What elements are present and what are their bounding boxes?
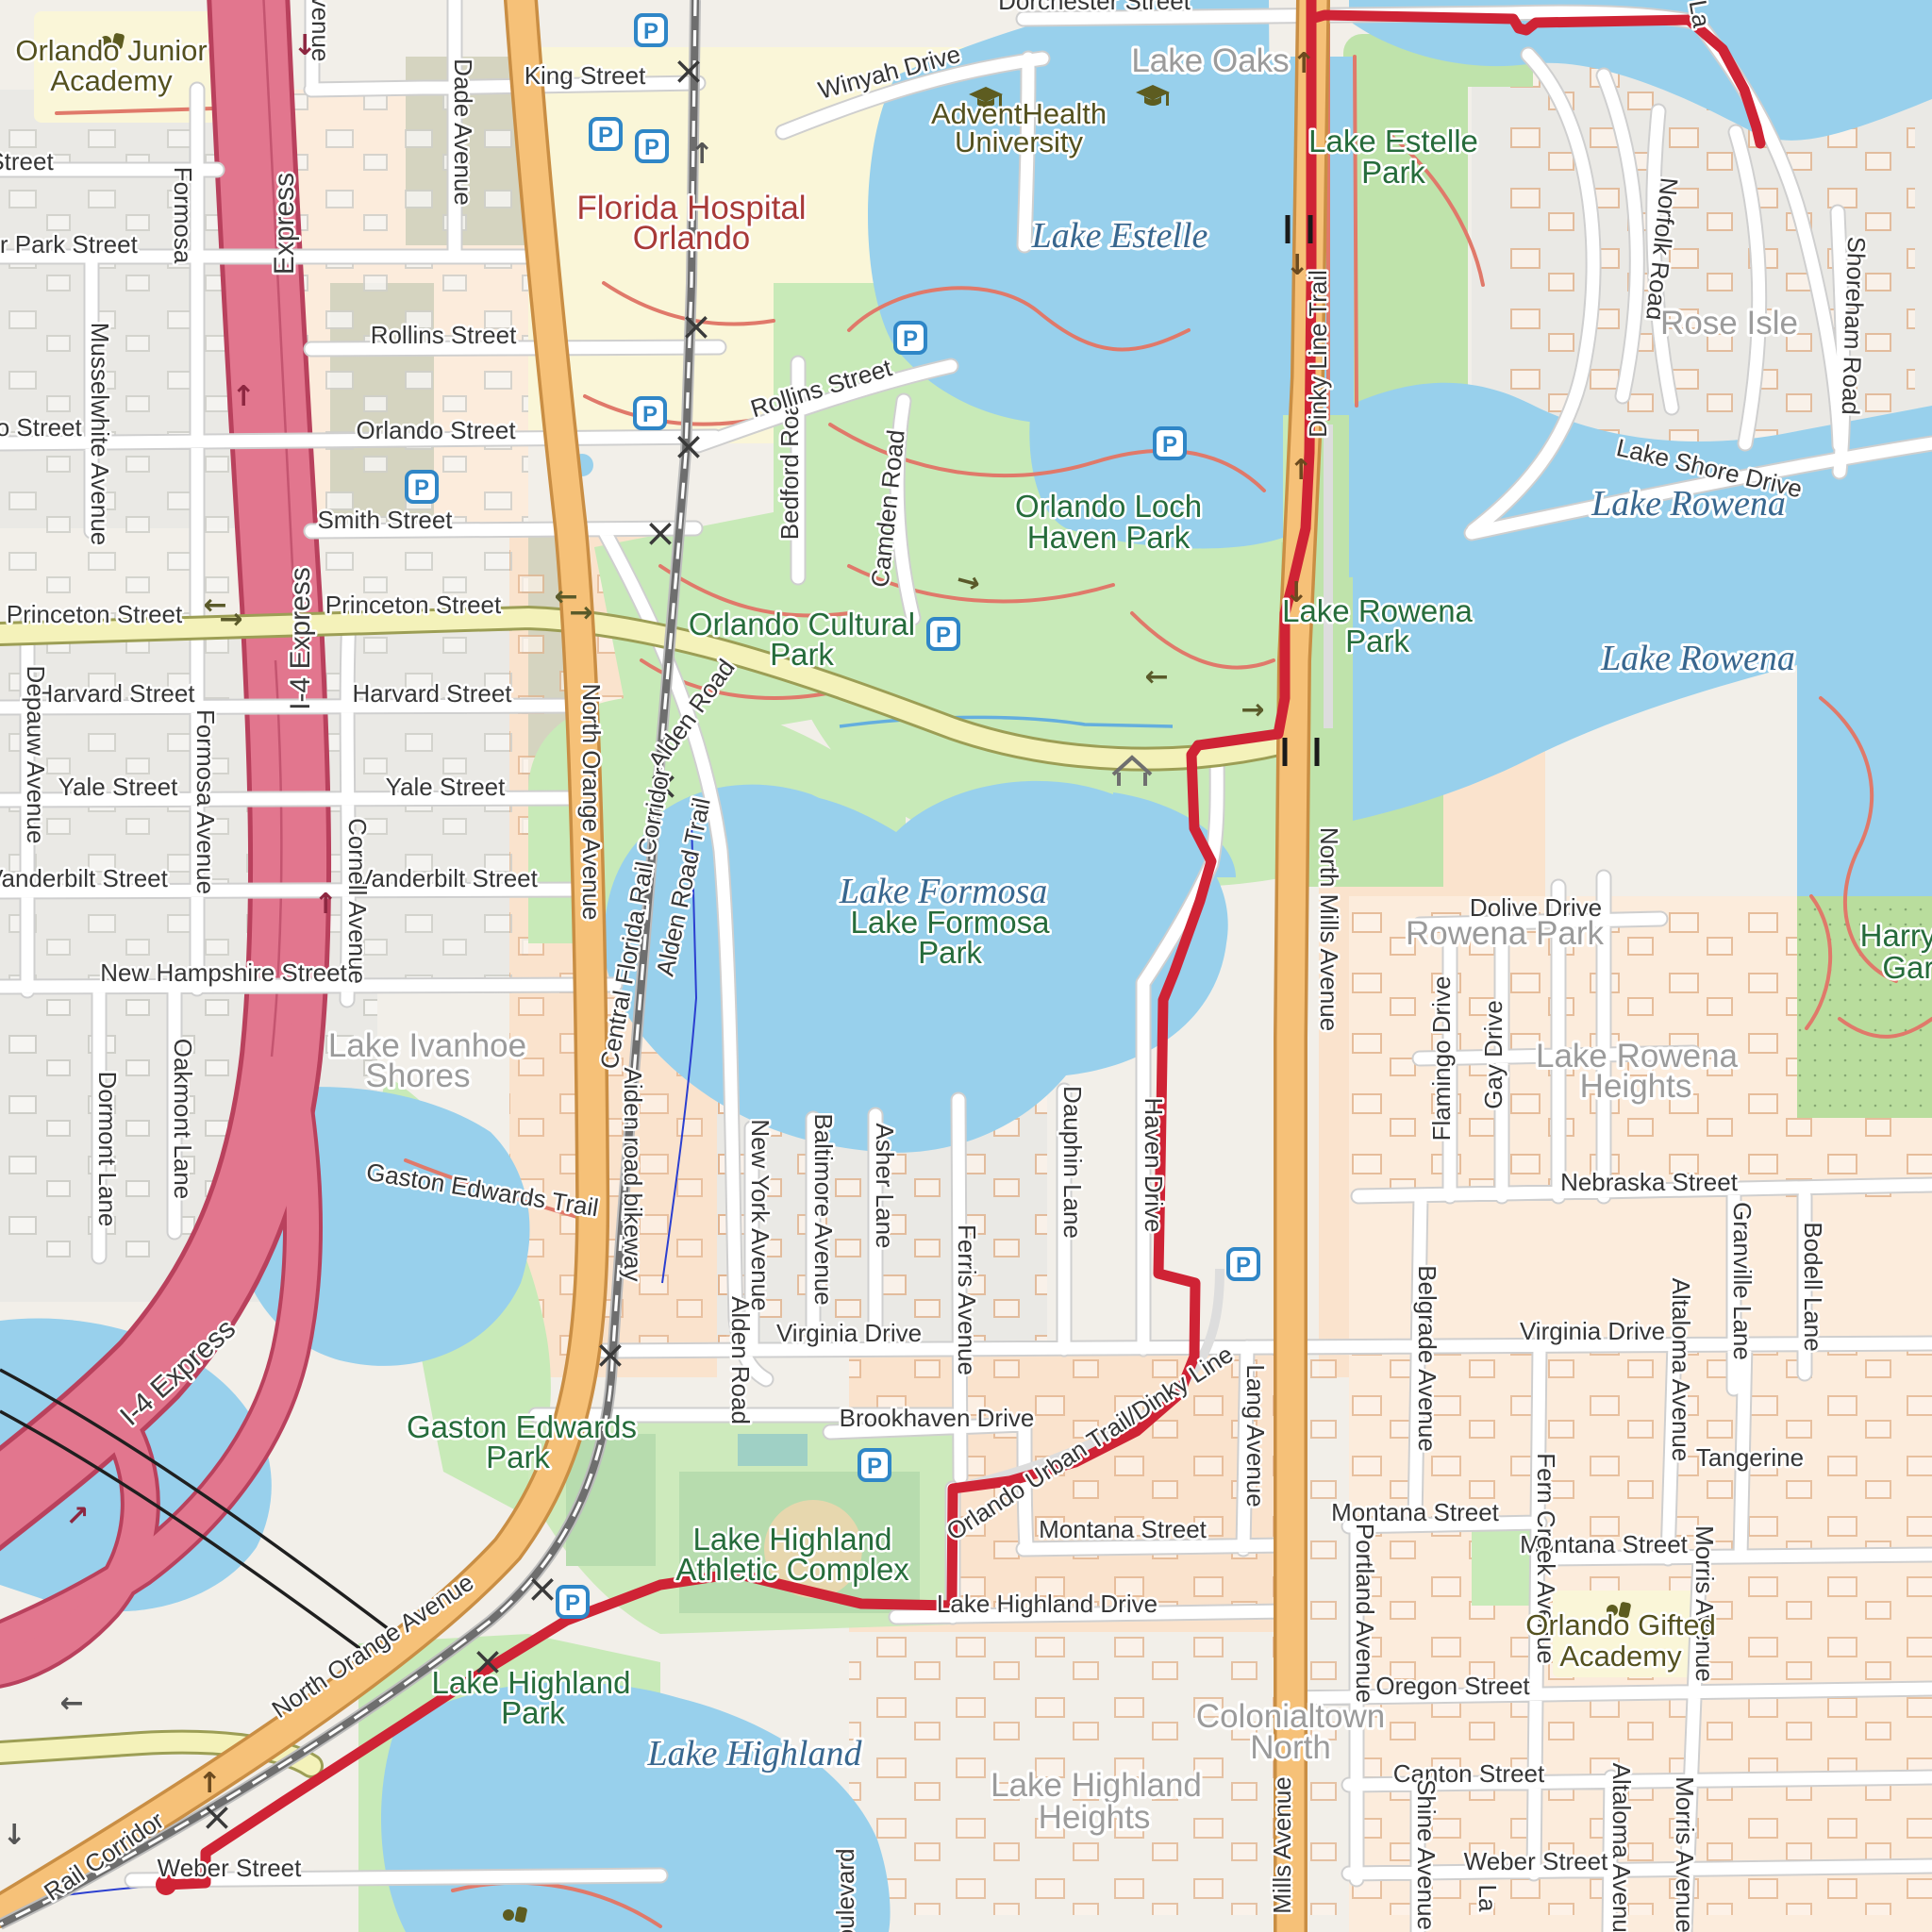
parking-icon-letter: P xyxy=(644,135,659,160)
oneway-arrow-icon: ← xyxy=(59,1687,83,1720)
parking-icon-letter: P xyxy=(598,123,613,148)
parking-icon: P xyxy=(591,119,621,149)
map-label: Morris Avenue xyxy=(1671,1776,1699,1932)
bridge-bar xyxy=(1308,215,1313,243)
map-label: Lake Oaks xyxy=(1131,42,1289,79)
map-label: Formosa Avenue xyxy=(192,709,220,894)
map-label: New Hampshire Street xyxy=(100,958,347,987)
map-label: Montana Street xyxy=(1039,1515,1207,1543)
map-label: Asher Lane xyxy=(871,1124,899,1249)
map-label: North Mills Avenue xyxy=(1315,827,1343,1031)
map-label: Oakmont Lane xyxy=(169,1039,197,1200)
map-label: Park xyxy=(770,637,834,672)
map-label: Park xyxy=(918,935,982,970)
parking-icon-letter: P xyxy=(643,19,658,44)
oneway-arrow-icon: ↑ xyxy=(231,380,255,413)
map-label: Oregon Street xyxy=(1375,1672,1530,1700)
map-label: North Orange Avenue xyxy=(577,683,606,920)
oneway-arrow-icon: ↑ xyxy=(1291,47,1315,80)
map-label: Aiden road bikeway xyxy=(619,1068,647,1282)
map-label: New York Avenue xyxy=(746,1119,774,1310)
oneway-arrow-icon: ← xyxy=(1144,660,1168,693)
rail-crossing-icon: × xyxy=(672,423,705,469)
parking-icon: P xyxy=(859,1450,890,1480)
parking-icon-letter: P xyxy=(867,1454,882,1479)
map-label: La xyxy=(1474,1885,1502,1912)
map-label: Gay Drive xyxy=(1479,1000,1507,1109)
parking-icon: P xyxy=(407,472,437,502)
map-label: Nebraska Street xyxy=(1560,1168,1739,1196)
map-viewport[interactable]: PPPPPPPPPPP×××××××××↓↑↑↗←→←→→←→↑↓↑↓↑↑←↓ … xyxy=(0,0,1932,1932)
map-label: Park xyxy=(501,1695,565,1730)
map-label: Lake Rowena xyxy=(1600,639,1795,678)
parking-icon-letter: P xyxy=(1236,1253,1251,1278)
map-label: Academy xyxy=(1559,1640,1682,1673)
parking-icon-letter: P xyxy=(414,475,429,501)
map-label: Dinky Line Trail xyxy=(1304,270,1332,438)
oneway-arrow-icon: ↗ xyxy=(65,1500,89,1533)
map-label: Altaloma Avenue xyxy=(1607,1763,1636,1932)
parking-icon: P xyxy=(637,131,667,161)
map-label: Baltimore Avenue xyxy=(809,1113,838,1305)
map-label: Lake Estelle xyxy=(1308,124,1478,158)
map-label: Harry xyxy=(1860,918,1932,953)
rail-crossing-icon: × xyxy=(672,47,705,93)
parking-icon-letter: P xyxy=(936,623,951,648)
map-label: Smith Street xyxy=(317,506,453,534)
parking-icon: P xyxy=(636,15,666,45)
map-label: Virginia Drive xyxy=(1520,1317,1665,1345)
map-label: Ferris Avenue xyxy=(953,1224,981,1375)
map-label: Yale Street xyxy=(58,773,178,801)
map-label: Academy xyxy=(50,64,173,97)
school-icon-dot xyxy=(503,1909,514,1921)
map-label: Orlando Gifted xyxy=(1525,1608,1716,1641)
map-label: Depauw Avenue xyxy=(22,666,50,844)
map-label: Yale Street xyxy=(386,773,506,801)
map-label: do Street xyxy=(0,413,83,441)
map-label: Lang Avenue xyxy=(1241,1364,1270,1507)
map-label: Shine Avenue xyxy=(1412,1779,1441,1930)
map-label: Orlando Junior xyxy=(15,34,207,67)
map-label: Rollins Street xyxy=(371,321,517,349)
parking-icon-letter: P xyxy=(565,1591,580,1616)
bridge-bar xyxy=(1283,738,1288,766)
map-label: I-4 Express xyxy=(285,567,316,710)
map-canvas[interactable]: PPPPPPPPPPP×××××××××↓↑↑↗←→←→→←→↑↓↑↓↑↑←↓ … xyxy=(0,0,1932,1932)
map-label: Lake Formosa xyxy=(839,872,1048,911)
map-label: Heights xyxy=(1580,1068,1692,1105)
parking-icon-letter: P xyxy=(1162,432,1177,458)
map-label: Gard xyxy=(1882,950,1932,985)
map-label: Heights xyxy=(1039,1799,1151,1836)
map-label: Harvard Street xyxy=(352,679,512,708)
map-label: Boulevard xyxy=(831,1848,859,1932)
oneway-arrow-icon: ↑ xyxy=(313,888,337,921)
map-label: Dormont Lane xyxy=(93,1072,122,1227)
map-label: Express xyxy=(269,173,300,275)
map-label: Tangerine xyxy=(1696,1443,1804,1472)
map-label: Lake Highland Drive xyxy=(937,1590,1158,1618)
map-label: Dorchester Street xyxy=(998,0,1191,15)
map-label: Haven Park xyxy=(1027,520,1191,555)
map-label: Virginia Drive xyxy=(776,1319,922,1347)
bridge-bar xyxy=(1286,215,1291,243)
map-label: Orlando Loch xyxy=(1015,489,1202,524)
map-label: Belgrade Avenue xyxy=(1413,1265,1441,1452)
map-label: Weber Street xyxy=(158,1854,302,1882)
oneway-arrow-icon: ↑ xyxy=(197,1767,221,1800)
parking-icon: P xyxy=(635,398,665,428)
map-label: Orlando xyxy=(633,220,751,257)
map-label: University xyxy=(955,125,1084,158)
map-label: Park xyxy=(1361,155,1425,190)
map-label: ter Park Street xyxy=(0,230,139,258)
map-label: Cornell Avenue xyxy=(343,818,372,984)
map-label: Mills Avenue xyxy=(1268,1776,1296,1914)
parking-icon-letter: P xyxy=(642,402,658,427)
map-label: Altaloma Avenue xyxy=(1667,1278,1695,1462)
oneway-arrow-icon: ↑ xyxy=(1289,454,1312,487)
map-label: Harvard Street xyxy=(35,679,195,708)
map-label: Athletic Complex xyxy=(675,1552,909,1587)
map-label: Morris Avenue xyxy=(1690,1525,1719,1682)
map-label: Dauphin Lane xyxy=(1058,1086,1087,1239)
map-label: Princeton Street xyxy=(7,600,183,628)
rail-crossing-icon: × xyxy=(525,1565,558,1611)
rail-crossing-icon: × xyxy=(679,303,712,349)
map-label: Montana Street xyxy=(1331,1498,1500,1526)
rail-crossing-icon: × xyxy=(643,509,676,556)
map-label: venue xyxy=(307,0,335,61)
oneway-arrow-icon: → xyxy=(569,596,592,629)
map-label: Shores xyxy=(366,1058,471,1094)
map-label: Flamingo Drive xyxy=(1427,976,1456,1141)
rail-crossing-icon: × xyxy=(593,1331,626,1377)
map-label: Rowena Park xyxy=(1406,915,1605,952)
map-label: Granville Lane xyxy=(1728,1202,1757,1360)
map-label: Portland Avenue xyxy=(1351,1524,1379,1703)
map-label: Lake Estelle xyxy=(1031,216,1208,256)
map-label: Rose Isle xyxy=(1660,305,1798,341)
map-label: Musselwhite Avenue xyxy=(86,323,114,546)
oneway-arrow-icon: → xyxy=(219,603,242,636)
rail-crossing-icon: × xyxy=(200,1793,233,1840)
parking-icon-letter: P xyxy=(903,326,918,352)
parking-icon: P xyxy=(558,1587,588,1617)
map-label: Street xyxy=(0,147,54,175)
map-label: Vanderbilt Street xyxy=(357,864,539,892)
map-label: Park xyxy=(486,1440,550,1474)
oneway-arrow-icon: ↑ xyxy=(690,138,713,171)
map-label: Weber Street xyxy=(1464,1847,1608,1875)
bridge-bar xyxy=(1315,738,1320,766)
map-label: Park xyxy=(1345,624,1409,658)
map-label: Princeton Street xyxy=(325,591,502,619)
map-label: Haven Drive xyxy=(1140,1097,1168,1232)
map-label: Bodell Lane xyxy=(1799,1222,1827,1351)
map-label: Alden Road xyxy=(726,1296,755,1424)
map-label: North xyxy=(1250,1729,1331,1766)
parking-icon: P xyxy=(1228,1249,1258,1279)
map-label: Brookhaven Drive xyxy=(840,1404,1035,1432)
parking-icon: P xyxy=(1155,428,1185,458)
cap-tassel xyxy=(1166,92,1169,106)
map-label: Dade Avenue xyxy=(449,58,477,206)
map-label: Lake Highland xyxy=(647,1734,863,1774)
map-label: Orlando Street xyxy=(356,416,516,444)
parking-icon: P xyxy=(895,323,925,353)
map-label: Formosa xyxy=(169,167,197,264)
oneway-arrow-icon: → xyxy=(1241,693,1264,726)
map-label: Vanderbilt Street xyxy=(0,864,169,892)
map-label: Lake Rowena xyxy=(1591,484,1786,524)
parking-icon: P xyxy=(928,619,958,649)
oneway-arrow-icon: ↓ xyxy=(2,1819,25,1852)
map-label: King Street xyxy=(525,61,646,90)
